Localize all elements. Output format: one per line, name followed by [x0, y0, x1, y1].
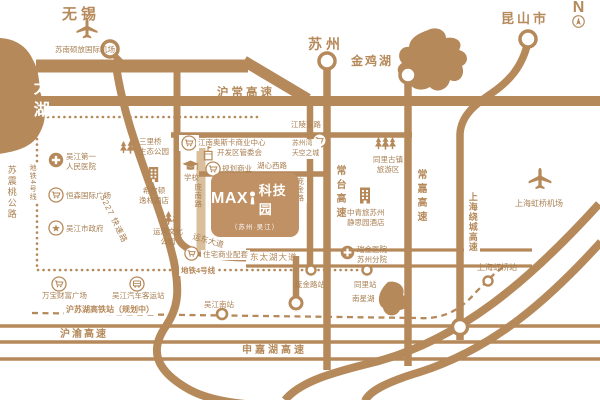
road-label-huxin: 湖心西路 [257, 161, 287, 171]
hongqiao-station-node [484, 277, 493, 286]
poi-label-skycity: 苏州湾 天空之城 [290, 139, 321, 159]
rail-road-junction-node [290, 297, 302, 309]
metro-line4-label-vertical: 地铁4号线 [26, 164, 39, 201]
poi-label-wanbao: 万宝财富广场 [42, 291, 87, 301]
poi-label-ruijin: 瑞金医院 苏州分院 [357, 245, 387, 265]
poi-label-kaifaqu: 开发区管委会 [217, 148, 262, 158]
airplane-icon [527, 166, 553, 192]
poi-label-zhuzhai: 住宅商业配套 [201, 250, 250, 260]
wujiang-south-node [217, 309, 227, 319]
road-label-suzhentao: 苏震桃公路 [5, 165, 17, 220]
compass: N [572, 0, 585, 33]
road-label-jiangling: 江陵东路 [291, 120, 321, 130]
bus-icon [129, 276, 145, 292]
hospital-cross-icon [340, 245, 355, 260]
station-label-wujiang-south: 吴江南站 [204, 300, 234, 310]
poi-label-yunhe: 运河文化 公园 [150, 227, 186, 247]
project-max-tech-park: MAX 科技园 （苏州·吴江） [211, 173, 299, 237]
pangjin-station-node [307, 266, 316, 275]
compass-north-label: N [572, 0, 585, 15]
expressway-label-shenjiahu: 申嘉湖高速 [242, 344, 307, 357]
airport-label-hongqiao: 上海虹桥机场 [515, 199, 563, 209]
expressway-label-changjia: 常嘉高速 [412, 169, 429, 225]
hotel-building-icon [146, 165, 161, 184]
lake-label-jinji: 金鸡湖 [351, 54, 393, 70]
star-icon [48, 220, 64, 236]
kunshan-node [520, 31, 536, 47]
poi-label-hilton: 希尔顿 逸林酒店 [138, 186, 170, 206]
city-label-suzhou: 苏州 [308, 35, 344, 53]
rail-label-husuhu: 沪苏湖高铁站（规划中） [64, 305, 156, 315]
station-label-tongli: 同里站 [354, 280, 377, 290]
suzhou-node [319, 53, 335, 69]
pine-trees-icon [158, 211, 179, 225]
poi-label-bus: 吴江汽车客运站 [112, 291, 165, 301]
poi-label-hengsen: 恒森国际广场 [66, 191, 111, 201]
project-logo-text: MAX [211, 190, 248, 208]
lake-label-nanxing: 南星湖 [352, 294, 375, 304]
nanxing-lake-shape [379, 282, 408, 316]
pine-trees-icon [375, 136, 396, 150]
station-label-pangjin: 庞金路站 [295, 280, 325, 290]
pine-trees-icon [120, 140, 141, 154]
cart-icon [48, 187, 64, 203]
graduation-cap-icon [182, 160, 199, 172]
poi-label-sanliqiao: 三里桥 生态公园 [139, 137, 169, 157]
tongli-station-node [363, 266, 372, 275]
cart-icon [184, 246, 199, 261]
station-label-hongqiao: 上海虹桥站 [477, 263, 517, 273]
hotel-building-icon [357, 185, 373, 206]
expressway-label-huchang: 沪常高速 [217, 86, 275, 101]
cart-icon [51, 276, 67, 292]
lake-label-taihu: 太湖 [28, 79, 49, 123]
poi-label-hospital1: 吴江第一 人民医院 [66, 152, 96, 172]
expressway-label-changtai: 常台高速 [331, 165, 348, 221]
poi-label-jingsiyuan: 中青旅苏州 静思园酒店 [347, 208, 385, 228]
project-name: 科技园 [259, 180, 299, 218]
poi-label-tongli-scenic: 同里古镇 旅游区 [368, 155, 408, 175]
airport-label-sunan: 苏南硕放国际机场 [55, 45, 115, 55]
city-label-kunshan: 昆山市 [501, 11, 549, 28]
project-subtitle: （苏州·吴江） [231, 221, 279, 231]
poi-label-government: 吴江市政府 [66, 224, 104, 234]
road-label-dongtaihu: 东太湖大道 [250, 252, 298, 263]
expressway-label-huyu: 沪渝高速 [60, 328, 108, 341]
committee-building-flag-icon [200, 145, 216, 161]
airplane-icon [75, 17, 99, 41]
expressway-label-raocheng: 上海绕城高速 [464, 192, 480, 252]
metro-line4-label: 地铁4号线 [179, 266, 217, 276]
location-map: 无锡 苏州 昆山市 金鸡湖 太湖 南星湖 N 苏南硕放国际机场 上海虹桥机场 沪… [0, 0, 600, 400]
north-arrow-icon [572, 15, 585, 28]
raocheng-junction-node [453, 320, 468, 335]
jinji-node [400, 67, 416, 83]
road-label-pangnan: 庞南路 [193, 183, 203, 209]
flask-mark-icon [249, 191, 256, 206]
poi-label-school: 学校 [184, 173, 199, 183]
hospital-cross-icon [48, 152, 64, 168]
